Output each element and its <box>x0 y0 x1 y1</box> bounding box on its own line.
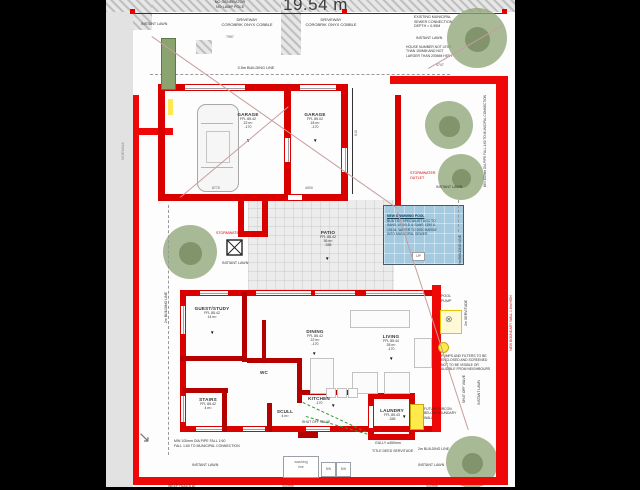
boundary-wall-note: NEW BOUNDARY WALL 1.8m HIGH <box>509 295 513 351</box>
garage-left-wall <box>158 84 165 201</box>
building-line-2m-dash-right <box>458 200 459 232</box>
pump-icon: ⊗ <box>445 314 453 325</box>
sofa <box>350 310 410 328</box>
building-line-35 <box>150 74 450 75</box>
instant-lawn-vertical: INSTANT LAWN <box>477 380 481 405</box>
driveway-label-left: DRIVEWAY COROBRIK ONYX COBBLE <box>218 17 276 27</box>
wc-right-wall <box>297 358 302 403</box>
tree <box>163 225 217 279</box>
servitude-2m-label: 2m SERVITUDE <box>464 300 469 326</box>
guest-bottom-wall <box>180 356 247 361</box>
gully-label: GULLY ⌀450mm <box>375 441 401 446</box>
level-marker: ▼ <box>325 256 329 261</box>
slope-arrow: ↘ <box>138 428 151 448</box>
sidewalk-strip <box>106 12 133 487</box>
sewer-line <box>151 36 397 209</box>
room-level: -170 <box>292 342 338 346</box>
weep-spacing-dim: 400mm <box>282 484 294 487</box>
window-opening <box>181 396 185 422</box>
site-plan-canvas: 19.54 m NO GENERATOR NO LAMP POLE DRIVEW… <box>0 0 640 490</box>
highlight-strip <box>168 99 173 115</box>
patio-door-opening <box>256 291 311 295</box>
patio-door-opening <box>366 291 424 295</box>
window-opening <box>306 427 330 431</box>
survey-peg <box>130 9 135 14</box>
instant-lawn-bottomleft: INSTANT LAWN <box>192 463 218 468</box>
side-table <box>414 338 432 368</box>
bin-label: BIN <box>322 467 335 471</box>
weep-holes-note: WEEP HOLES AT <box>168 484 196 487</box>
porch-wall <box>262 201 268 237</box>
garage-bottom-wall <box>158 194 348 201</box>
instant-lawn-mid: INSTANT LAWN <box>222 261 248 266</box>
stormwater-tank-icon <box>226 239 243 256</box>
stormwater-outlet-label: STORMWATER OUTLET <box>410 171 446 180</box>
window-opening <box>200 291 228 295</box>
tree <box>447 8 507 68</box>
plan-sheet: 19.54 m NO GENERATOR NO LAMP POLE DRIVEW… <box>106 0 515 487</box>
window-opening <box>181 306 185 334</box>
building-line-2m-pool: 2m BUILDING LINE <box>458 235 462 265</box>
room-level: -170 <box>292 125 338 129</box>
room-level: -170 <box>368 347 414 351</box>
washing-line-label: washing line <box>284 460 318 469</box>
boundary-wall-left <box>133 95 139 479</box>
level-marker: ▼ <box>210 330 214 335</box>
garage-right-wall <box>341 84 348 201</box>
pumps-note: PUMPS AND FILTERS TO BE ENCLOSED AND SCR… <box>441 354 505 372</box>
instant-lawn-court: INSTANT LAWN <box>436 185 462 190</box>
laundry-bottom-wall <box>368 434 415 440</box>
boundary-wall-top-right <box>390 76 508 84</box>
room-area: 4 m² <box>190 406 226 410</box>
room-label-living: LIVING FFL 85.44 28 m² -170 <box>368 334 414 351</box>
driveway-dim: 7997 <box>226 35 234 40</box>
instant-lawn-bottomright: INSTANT LAWN <box>418 463 444 468</box>
level-marker: ▼ <box>389 356 393 361</box>
garage-right-dim: 4000 <box>305 186 313 191</box>
stairs-right-wall <box>222 388 227 432</box>
garage-bottom-opening <box>288 195 302 200</box>
window-opening <box>243 427 265 431</box>
bin-label: BIN <box>337 467 350 471</box>
pool-pump-label: POOL PUMP <box>441 294 451 303</box>
future-aircon-box <box>410 404 424 430</box>
weep-spacing-dim: 400mm <box>426 484 438 487</box>
bin-box: BIN <box>321 462 336 477</box>
sidewalk-label: SIDEWALK <box>121 142 126 160</box>
kitchen-stub-wall <box>298 432 318 438</box>
boundary-wall-right <box>496 76 508 484</box>
court-dim: 610 <box>354 130 359 136</box>
ramp-hatch <box>196 40 212 54</box>
hall-wall <box>262 320 266 360</box>
washing-line-box: washing line <box>283 456 319 478</box>
shut-off-valve-vertical: SHUT OFF VALVE <box>462 375 466 403</box>
boundary-wall-left-stub <box>133 128 173 135</box>
bin-box: BIN <box>336 462 351 477</box>
chair <box>384 372 410 394</box>
room-label-guest: GUEST/STUDY FFL 85.42 14 m² <box>186 306 238 319</box>
instant-lawn-topright: INSTANT LAWN <box>416 36 442 41</box>
future-aircon-note: FUTURE AIRCON BELOW BOUNDARY WALL <box>424 407 460 420</box>
patio-door-opening <box>315 291 355 295</box>
wc-top-wall <box>247 358 302 363</box>
kitchen-counter <box>348 388 358 398</box>
garage-left-dim: 8770 <box>212 186 220 191</box>
room-label-patio: PATIO FFL 85.42 36 m² -345 <box>303 230 353 247</box>
pipe-fall-vertical-note: MIN 100mm DIA PIPE FALL 1:60 TO MUNICIPA… <box>483 95 487 187</box>
level-marker: ▼ <box>313 138 317 143</box>
instant-lawn-topleft: INSTANT LAWN <box>141 22 167 27</box>
room-level: -345 <box>303 243 353 247</box>
room-label-dining: DINING FFL 85.42 22 m² -170 <box>292 329 338 346</box>
pool-step-up: UP <box>412 252 425 261</box>
garage-door-left <box>185 85 245 90</box>
level-marker: ▼ <box>402 414 406 419</box>
pole-note: NO GENERATOR NO LAMP POLE <box>210 0 250 10</box>
building-line-2m-bottom: 2m BUILDING LINE <box>418 447 449 452</box>
plot-width-dimension: 19.54 m <box>283 0 348 16</box>
room-label-scullery: SCULL 4 m² <box>271 409 299 418</box>
guest-right-wall <box>242 292 247 362</box>
side-court-wall <box>395 95 401 205</box>
driveway-label-right: DRIVEWAY COROBRIK ONYX COBBLE <box>302 17 360 27</box>
window-opening <box>196 427 222 431</box>
pool-note-body: BUILT BY SPECIALIST ACC TO SANS 10400-D … <box>387 219 437 236</box>
garage-door-right <box>300 85 336 90</box>
pipe-fall-note: MIN 100mm DIA PIPE FALL 1:60 FALL 1:60 T… <box>174 439 274 448</box>
survey-peg <box>502 9 507 14</box>
title-deed-label: TITLE DEED SERVITUDE <box>372 449 413 454</box>
stormwater-label: STORMWATER <box>216 231 242 236</box>
level-marker: ▼ <box>312 351 316 356</box>
room-name: WC <box>256 370 272 375</box>
room-area: 4 m² <box>271 414 299 418</box>
garage-right-door <box>342 148 347 172</box>
building-line-2m-dash-left <box>168 205 169 455</box>
room-area: 14 m² <box>186 315 238 319</box>
kitchen-counter <box>337 388 347 398</box>
stairs-top-wall <box>183 388 228 393</box>
building-line-35-label: 3.5m BUILDING LINE <box>226 66 286 71</box>
garage-middle-door <box>285 138 290 162</box>
room-label-wc: WC <box>256 370 272 375</box>
tree <box>425 101 473 149</box>
pool-pump-box: ⊗ <box>440 310 462 334</box>
room-label-garage-right: GARAGE FFL 85.02 18 m² -170 <box>292 112 338 129</box>
level-marker: ▼ <box>331 403 335 408</box>
room-label-stairs: STAIRS FFL 85.42 4 m² <box>190 397 226 410</box>
